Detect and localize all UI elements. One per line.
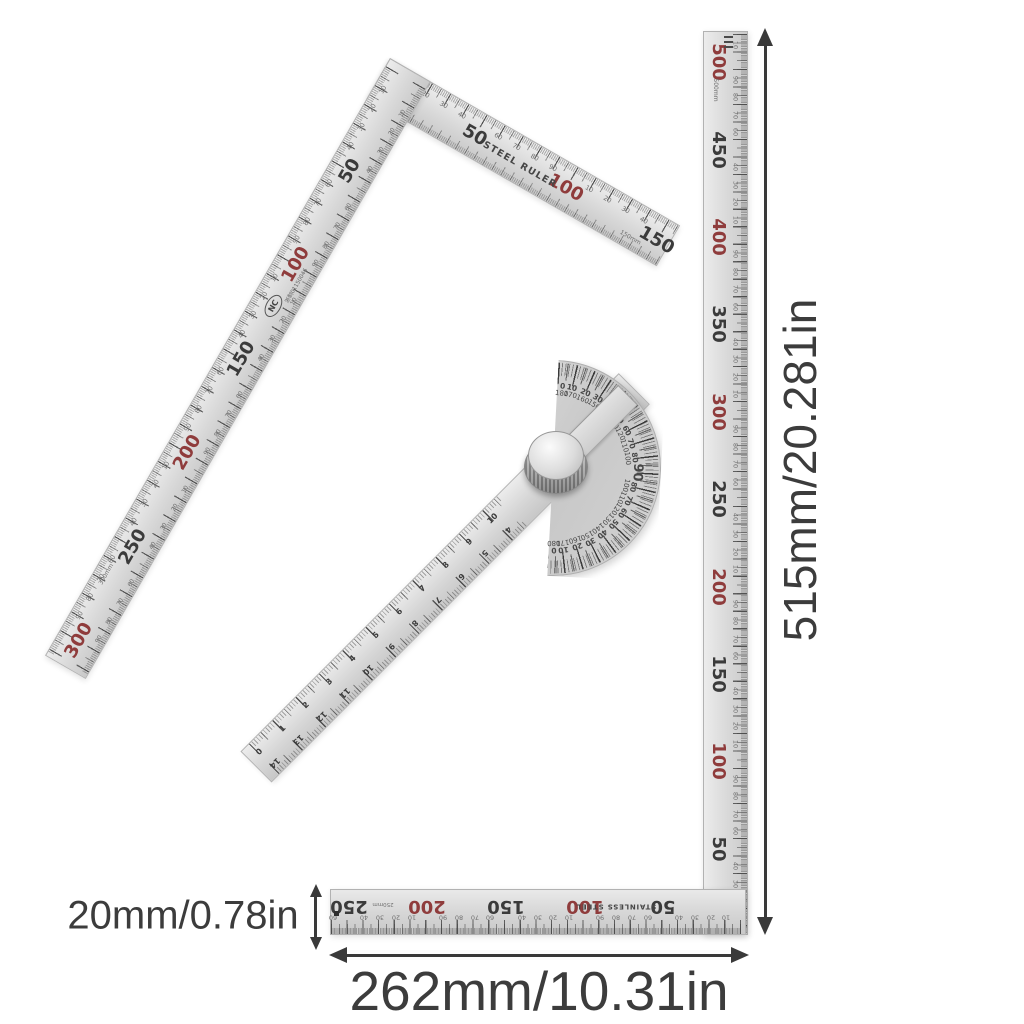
major-number: 350 [709, 306, 727, 344]
minor-number: 30 [732, 180, 739, 188]
arm-lower-number: 7 [433, 595, 443, 605]
minor-number: 90 [312, 259, 321, 269]
minor-number: 40 [237, 329, 247, 339]
minor-number: 60 [236, 391, 245, 401]
arm-lower-number: 12 [314, 709, 328, 723]
arm-upper-number: 6 [395, 607, 405, 617]
minor-number: 80 [105, 616, 114, 626]
minor-number: 90 [596, 914, 604, 921]
minor-number: 30 [732, 355, 739, 363]
minor-number: 40 [732, 338, 739, 346]
minor-number: 60 [732, 128, 739, 136]
degree-label-pair: 0180 [548, 538, 562, 554]
minor-number: 70 [732, 460, 739, 468]
minor-number: 90 [732, 775, 739, 783]
major-number: 100 [709, 742, 727, 780]
minor-number: 40 [732, 163, 739, 171]
minor-number: 20 [549, 914, 557, 921]
minor-number: 70 [470, 914, 478, 921]
minor-number: 40 [675, 914, 683, 921]
minor-number: 60 [127, 579, 136, 589]
minor-number: 70 [732, 285, 739, 293]
minor-number: 90 [732, 250, 739, 258]
minor-number: 40 [732, 687, 739, 695]
minor-number: 60 [643, 914, 651, 921]
size-note: 300mm [98, 563, 115, 586]
minor-number: 30 [248, 310, 258, 320]
minor-number: 40 [360, 914, 368, 921]
minor-number: 10 [584, 184, 594, 194]
minor-number: 90 [292, 235, 302, 245]
minor-number: 90 [439, 914, 447, 921]
minor-number: 90 [95, 635, 104, 645]
minor-number: 20 [706, 914, 714, 921]
minor-number: 80 [214, 428, 223, 438]
minor-number: 90 [732, 600, 739, 608]
minor-number: 90 [75, 611, 85, 621]
product-image-canvas: 50100150102030406070809010203040STEEL RU… [0, 0, 1024, 1024]
minor-number: 30 [732, 530, 739, 538]
minor-number: 20 [388, 128, 397, 138]
major-number: 200 [709, 568, 727, 606]
minor-number: 70 [313, 197, 323, 207]
brand-label: STAINLESS STEEL [576, 903, 656, 910]
minor-number: 10 [732, 390, 739, 398]
minor-number: 20 [732, 198, 739, 206]
arrowhead-down-icon [757, 917, 773, 935]
degree-inner: 180 [548, 538, 562, 546]
minor-number: 90 [732, 76, 739, 84]
minor-number: 80 [732, 93, 739, 101]
minor-number: 60 [732, 652, 739, 660]
minor-number: 20 [279, 316, 288, 326]
minor-number: 30 [533, 914, 541, 921]
minor-number: 10 [565, 914, 573, 921]
minor-number: 10 [732, 215, 739, 223]
minor-number: 10 [378, 84, 388, 94]
major-number: 300 [709, 393, 727, 431]
minor-number: 20 [732, 722, 739, 730]
minor-number: 20 [602, 195, 612, 205]
minor-number: 80 [302, 216, 312, 226]
protractor-pivot-knob-top [528, 431, 584, 480]
minor-number: 70 [732, 111, 739, 119]
arm-upper-number: 0 [255, 747, 265, 757]
major-number: 400 [709, 218, 727, 256]
arm-upper-number: 1 [278, 724, 288, 734]
arm-lower-number: 9 [386, 641, 396, 651]
steel-square-small-long-arm: 5010015020025030010203040607080901020304… [45, 58, 431, 679]
arrow-line [343, 954, 735, 957]
minor-number: 70 [225, 409, 234, 419]
steel-square-large-vertical-arm: 5004504003503002502001501005010203040607… [703, 31, 748, 935]
minor-number: 40 [257, 353, 266, 363]
thickness-dimension-arrow [308, 884, 323, 950]
arm-upper-number: 3 [325, 677, 335, 687]
minor-number: 20 [732, 547, 739, 555]
minor-number: 80 [322, 240, 331, 250]
minor-number: 10 [408, 914, 416, 921]
minor-number: 30 [732, 705, 739, 713]
minor-number: 60 [324, 178, 334, 188]
minor-number: 70 [732, 635, 739, 643]
minor-number: 20 [392, 914, 400, 921]
minor-number: 60 [732, 303, 739, 311]
minor-number: 70 [116, 597, 125, 607]
arrow-line [764, 42, 767, 921]
minor-number: 80 [732, 617, 739, 625]
minor-number: 70 [205, 385, 215, 395]
minor-number: 40 [732, 862, 739, 870]
thickness-dimension-label: 20mm/0.78in [67, 894, 298, 939]
minor-number: 80 [455, 914, 463, 921]
major-number: 50 [336, 155, 364, 186]
arm-lower-number: 10 [361, 663, 375, 677]
maker-stamp [724, 36, 733, 51]
major-number: 250 [709, 480, 727, 518]
arrowhead-down-icon [310, 937, 322, 950]
minor-number: 10 [398, 109, 407, 119]
minor-number: 60 [732, 827, 739, 835]
minor-number: 30 [357, 122, 367, 132]
minor-number: 80 [732, 792, 739, 800]
minor-number: 60 [216, 366, 226, 376]
minor-number: 40 [149, 541, 158, 551]
ink-dot [334, 911, 339, 916]
minor-number: 30 [160, 522, 169, 532]
arm-upper-number: 7 [418, 584, 428, 594]
size-note: 250mm [372, 900, 393, 906]
minor-number: 70 [628, 914, 636, 921]
minor-number: 20 [151, 479, 161, 489]
minor-number: 40 [457, 111, 467, 121]
minor-number: 40 [366, 165, 375, 175]
arm-upper-number: 5 [371, 631, 381, 641]
minor-number: 90 [183, 423, 193, 433]
major-number: 50 [709, 836, 727, 861]
minor-number: 80 [85, 592, 95, 602]
minor-number: 30 [268, 334, 277, 344]
arm-upper-number: 2 [301, 701, 311, 711]
major-number: 150 [225, 338, 259, 380]
minor-number: 40 [518, 914, 526, 921]
minor-number: 30 [620, 205, 630, 215]
arm-lower-number: 13 [291, 733, 305, 747]
minor-number: 70 [511, 142, 521, 152]
minor-number: 40 [732, 512, 739, 520]
minor-number: 80 [732, 443, 739, 451]
minor-number: 30 [376, 914, 384, 921]
minor-number: 30 [140, 498, 150, 508]
width-dimension-label: 262mm/10.31in [349, 959, 728, 1023]
major-number: 250 [116, 526, 150, 568]
minor-number: 30 [732, 879, 739, 887]
minor-number: 30 [691, 914, 699, 921]
major-number: 450 [709, 131, 727, 169]
arm-lower-number: 11 [338, 686, 352, 700]
minor-number: 30 [377, 146, 386, 156]
minor-number: 20 [732, 373, 739, 381]
minor-number: 60 [486, 914, 494, 921]
nc-logo-text: NC [267, 298, 280, 313]
minor-number: 20 [368, 103, 378, 113]
minor-number: 70 [732, 810, 739, 818]
minor-number: 10 [732, 740, 739, 748]
minor-number: 80 [732, 268, 739, 276]
minor-number: 90 [203, 447, 212, 457]
minor-number: 80 [612, 914, 620, 921]
arm-lower-number: 14 [268, 756, 282, 770]
minor-number: 10 [732, 565, 739, 573]
steel-square-large-bottom-arm: 2502001501005010203040607080901020304060… [330, 889, 746, 935]
minor-number: 30 [438, 100, 448, 110]
minor-number: 40 [346, 141, 356, 151]
minor-number: 90 [732, 425, 739, 433]
minor-number: 80 [529, 153, 539, 163]
major-number: 200 [170, 432, 204, 474]
minor-number: 70 [333, 222, 342, 232]
arrow-line [314, 894, 317, 940]
arm-lower-number: 8 [410, 618, 420, 628]
major-number: 150 [709, 655, 727, 693]
arm-upper-number: 4 [348, 654, 358, 664]
arm-lower-number: 6 [456, 571, 466, 581]
arrowhead-right-icon [731, 947, 749, 963]
major-number: 300 [62, 620, 96, 662]
minor-number: 10 [722, 914, 730, 921]
size-note: 500mm [712, 78, 718, 101]
minor-number: 60 [493, 132, 503, 142]
minor-number: 20 [171, 503, 180, 513]
minor-number: 40 [129, 517, 139, 527]
minor-number: 60 [344, 203, 353, 213]
height-dimension-label: 515mm/20.281in [773, 299, 827, 642]
minor-number: 10 [181, 485, 190, 495]
minor-number: 60 [732, 478, 739, 486]
minor-number: 80 [194, 404, 204, 414]
